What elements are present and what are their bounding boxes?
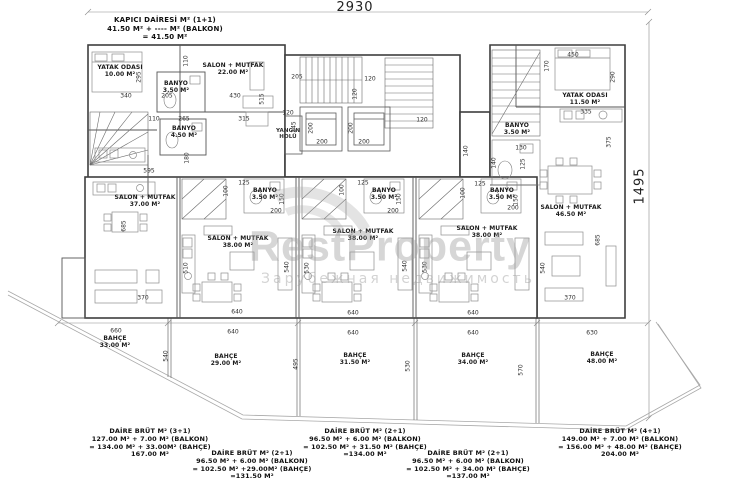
note-line: 41.50 M² + ---- M² (BALKON) — [107, 25, 223, 34]
garden-walls — [168, 318, 539, 423]
note-line: KAPICI DAİRESİ M² (1+1) — [107, 16, 223, 25]
outer-walls — [85, 45, 625, 318]
overall-height-dim: 1495 — [633, 167, 648, 204]
floorplan-drawing — [0, 0, 752, 480]
note-line: = 41.50 M² — [107, 33, 223, 42]
caretaker-unit-note: KAPICI DAİRESİ M² (1+1) 41.50 M² + ---- … — [107, 16, 223, 42]
overall-width-dim: 2930 — [336, 0, 373, 15]
floorplan-page: 2930 1495 KAPICI DAİRESİ M² (1+1) 41.50 … — [0, 0, 752, 480]
